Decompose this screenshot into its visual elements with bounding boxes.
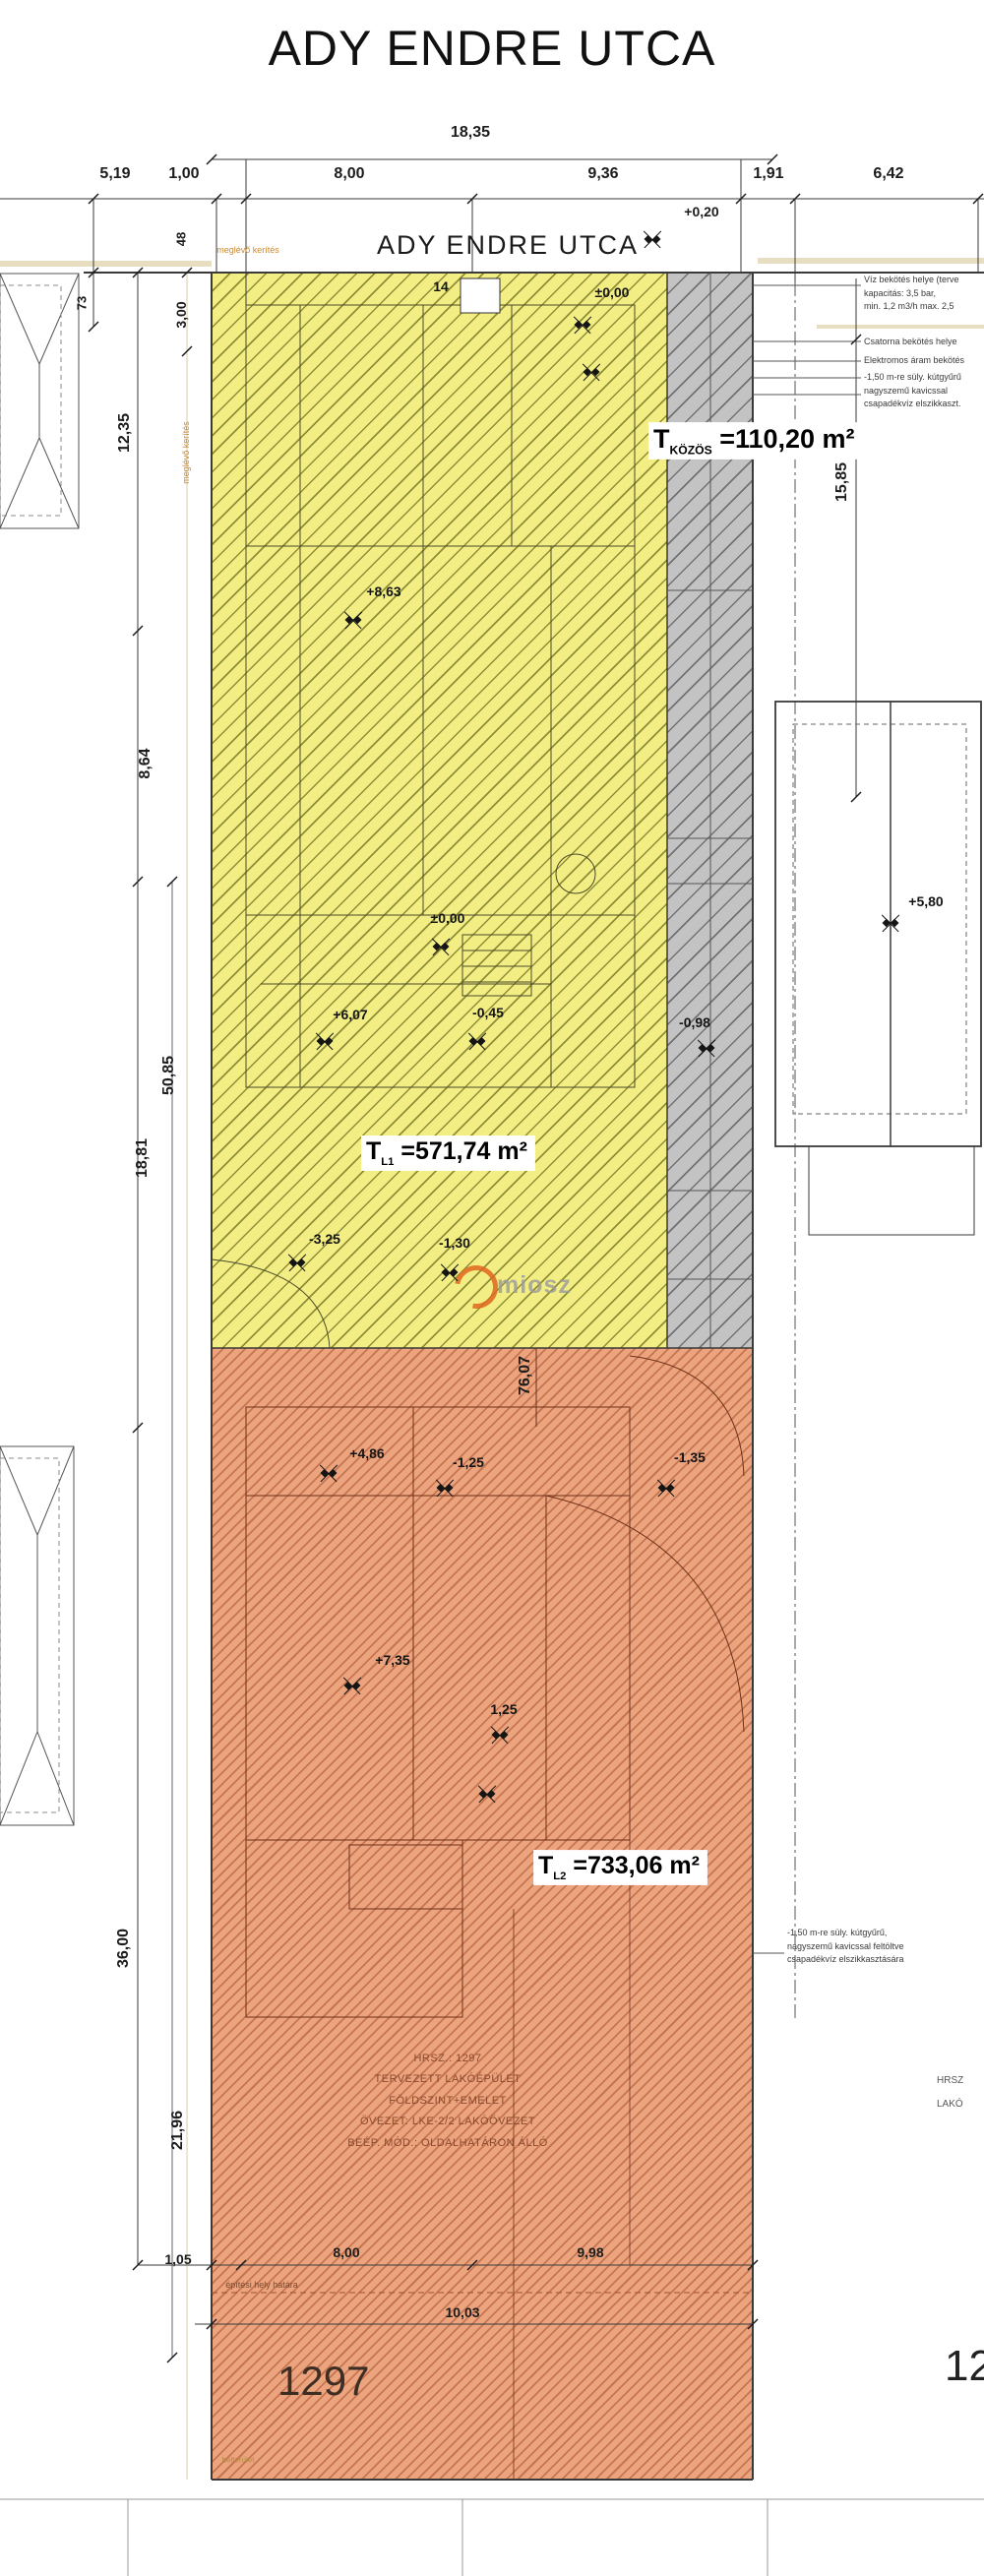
elevation-label: +6,07	[333, 1007, 367, 1022]
neighbor-label-line: LAKÓ	[937, 2093, 963, 2116]
survey-point-marker	[645, 231, 661, 248]
plot-info-line: FÖLDSZINT+EMELET	[325, 2091, 571, 2112]
survey-point-marker	[492, 1727, 509, 1744]
area-symbol: T	[653, 424, 670, 454]
area-symbol: T	[366, 1137, 381, 1165]
dimension-label: 10,03	[445, 2304, 479, 2320]
utility-note-line: csapadékvíz elszikkaszt.	[864, 398, 961, 411]
dimension-label: 6,42	[873, 165, 903, 183]
plot-number: 1297	[277, 2358, 369, 2405]
dimension-label: 76,07	[517, 1356, 534, 1395]
site-plan-canvas: ADY ENDRE UTCA ADY ENDRE UTCA TKÖZÖS =11…	[0, 0, 984, 2576]
neighbor-label-line: HRSZ	[937, 2069, 963, 2093]
neighbor-plot-number-partial: 12	[945, 2342, 984, 2391]
area-symbol: T	[538, 1852, 553, 1879]
elevation-label: +8,63	[366, 583, 400, 599]
utility-note-line: min. 1,2 m3/h max. 2,5	[864, 300, 959, 314]
dimension-label: 15,85	[833, 462, 851, 502]
elevation-label: -0,45	[472, 1005, 504, 1020]
survey-point-marker	[479, 1786, 496, 1803]
miosz-watermark: miosz	[497, 1271, 572, 1300]
area-value: =571,74 m²	[400, 1137, 527, 1165]
plot-info-line: BEÉP. MÓD.: OLDALHATÁRON ÁLLÓ	[325, 2133, 571, 2154]
survey-point-marker	[437, 1480, 454, 1497]
area-value: =733,06 m²	[573, 1852, 700, 1879]
dimension-label: 5,19	[99, 165, 130, 183]
survey-point-marker	[699, 1040, 715, 1057]
street-name-label: ADY ENDRE UTCA	[377, 230, 639, 261]
soakaway-note: -1,50 m-re süly. kútgyűrű,nagyszemű kavi…	[787, 1927, 904, 1967]
elevation-label: -0,98	[679, 1014, 710, 1030]
dimension-label: 8,64	[137, 748, 154, 778]
dimension-label: 73	[75, 296, 90, 310]
elevation-label: 14	[433, 278, 449, 294]
elevation-label: +7,35	[375, 1652, 409, 1668]
survey-point-marker	[321, 1465, 338, 1482]
survey-point-marker	[575, 317, 591, 334]
elevation-label: -1,25	[453, 1454, 484, 1470]
survey-point-marker	[658, 1480, 675, 1497]
elevation-label: +4,86	[349, 1445, 384, 1461]
utility-note: Víz bekötés helye (tervekapacitás: 3,5 b…	[864, 274, 959, 314]
dimension-label: 50,85	[160, 1056, 178, 1095]
area-value: =110,20 m²	[719, 424, 854, 454]
page-title: ADY ENDRE UTCA	[269, 20, 716, 77]
dimension-label: 36,00	[115, 1929, 133, 1968]
elevation-label: 1,25	[490, 1701, 517, 1717]
dimension-label: 9,98	[577, 2244, 603, 2260]
plot-info-block: HRSZ.: 1297TERVEZETT LAKÓÉPÜLETFÖLDSZINT…	[325, 2049, 571, 2154]
dimension-label: 1,05	[164, 2251, 191, 2267]
dimension-label: 12,35	[116, 413, 134, 453]
elevation-label: -3,25	[309, 1231, 340, 1247]
survey-point-marker	[344, 1678, 361, 1694]
soakaway-note-line: nagyszemű kavicssal feltöltve	[787, 1940, 904, 1954]
dimension-label: 18,81	[134, 1138, 152, 1178]
elevation-label: ±0,00	[595, 284, 630, 300]
survey-point-marker	[442, 1264, 459, 1281]
plot-info-line: TERVEZETT LAKÓÉPÜLET	[325, 2069, 571, 2090]
survey-point-marker	[345, 612, 362, 629]
elevation-label: -1,30	[439, 1235, 470, 1251]
plot-info-line: HRSZ.: 1297	[325, 2049, 571, 2069]
dimension-label: 1,91	[753, 165, 783, 183]
elevation-label: ±0,00	[431, 910, 465, 926]
elevation-label: -1,35	[674, 1449, 706, 1465]
dimension-label: 48	[174, 232, 189, 246]
utility-note-line: -1,50 m-re süly. kútgyűrű	[864, 371, 961, 385]
soakaway-note-line: -1,50 m-re süly. kútgyűrű,	[787, 1927, 904, 1940]
dimension-label: +0,20	[684, 204, 718, 219]
utility-note: Elektromos áram bekötés	[864, 354, 964, 368]
survey-point-marker	[289, 1255, 306, 1271]
dimension-label: 1,00	[168, 165, 199, 183]
dimension-label: 18,35	[451, 124, 490, 142]
survey-point-marker	[883, 915, 899, 932]
survey-point-marker	[317, 1033, 334, 1050]
plot-info-line: ÖVEZET: LKE-2/2 LAKÓÖVEZET	[325, 2112, 571, 2132]
utility-note-line: Víz bekötés helye (terve	[864, 274, 959, 287]
dimension-label: 8,00	[333, 2244, 359, 2260]
utility-note: Csatorna bekötés helye	[864, 336, 957, 349]
dimension-label: 3,00	[173, 301, 189, 328]
area-label-common: TKÖZÖS =110,20 m²	[649, 423, 862, 459]
survey-point-marker	[584, 364, 600, 381]
annotation-small-text: belterület	[222, 2456, 255, 2465]
utility-note-line: Elektromos áram bekötés	[864, 354, 964, 368]
annotation-small-text: meglévő kerítés	[181, 421, 191, 484]
area-label-l1: TL1 =571,74 m²	[362, 1136, 534, 1170]
soakaway-note-line: csapadékvíz elszikkasztására	[787, 1953, 904, 1967]
area-subscript: L1	[381, 1156, 394, 1168]
dimension-label: 8,00	[334, 165, 364, 183]
annotation-small-text: építési hely határa	[225, 2280, 298, 2290]
elevation-label: +5,80	[908, 893, 943, 909]
utility-note-line: kapacitás: 3,5 bar,	[864, 287, 959, 301]
area-subscript: L2	[553, 1871, 566, 1882]
neighbor-label-partial: HRSZLAKÓ	[937, 2069, 963, 2116]
area-subscript: KÖZÖS	[670, 443, 712, 457]
annotation-small-text: meglévő kerítés	[216, 245, 279, 255]
area-label-l2: TL2 =733,06 m²	[534, 1851, 707, 1884]
survey-point-marker	[433, 939, 450, 955]
utility-note-line: Csatorna bekötés helye	[864, 336, 957, 349]
dimension-label: 21,96	[169, 2111, 187, 2150]
utility-note: -1,50 m-re süly. kútgyűrűnagyszemű kavic…	[864, 371, 961, 411]
survey-point-marker	[469, 1033, 486, 1050]
utility-note-line: nagyszemű kavicssal	[864, 385, 961, 399]
dimension-label: 9,36	[587, 165, 618, 183]
